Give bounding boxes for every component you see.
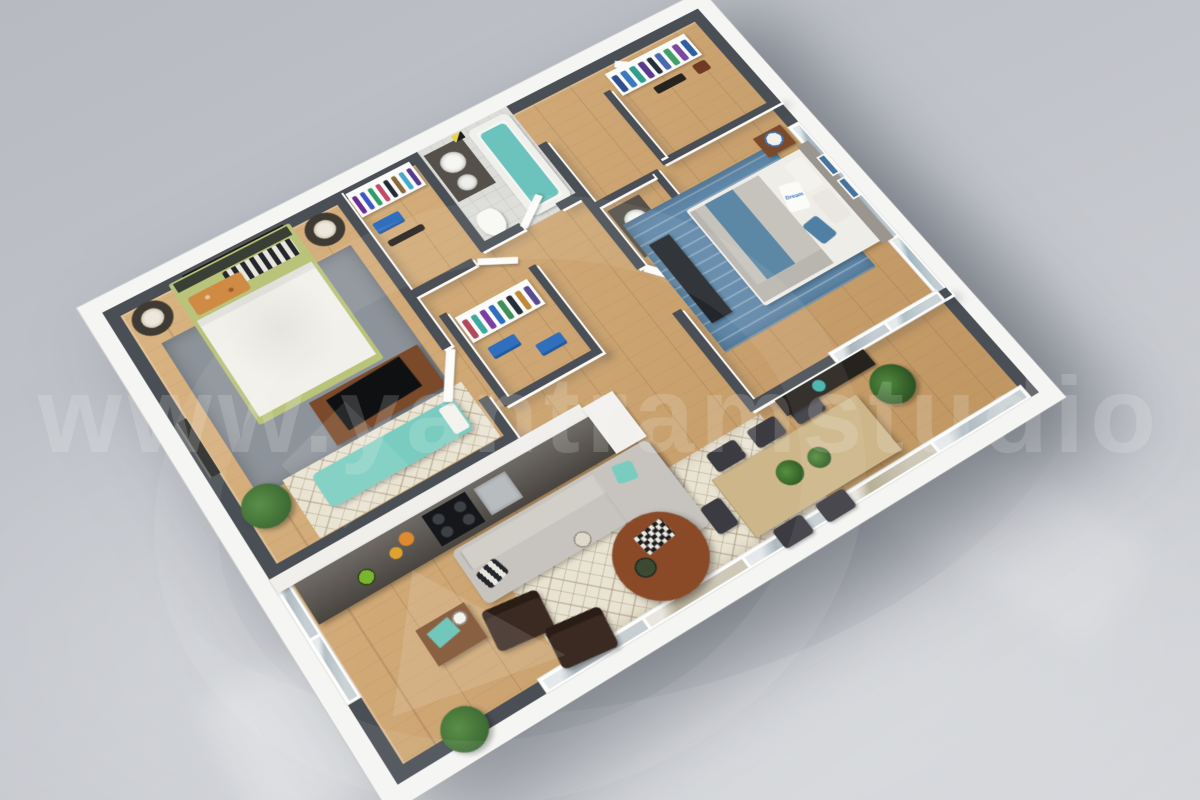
studio-backdrop: Dream (0, 0, 1200, 800)
dream-pillow-text: Dream (785, 192, 805, 202)
